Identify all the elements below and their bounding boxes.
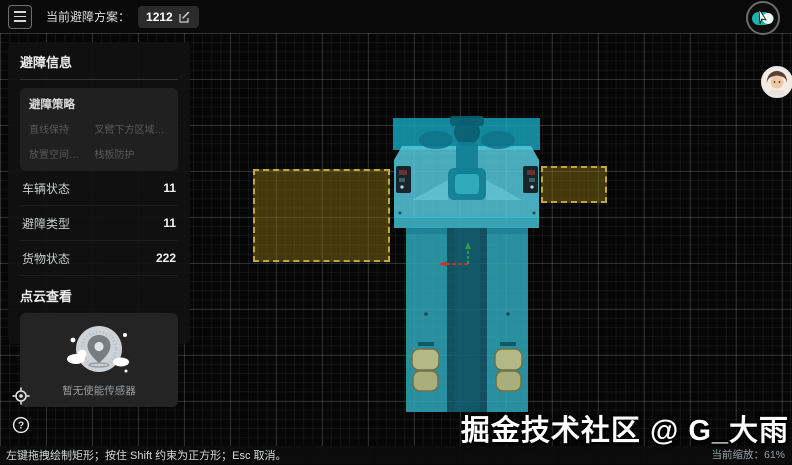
strategy-item: 叉臂下方区域保... (95, 121, 169, 136)
obstacle-info-panel: 避障信息 避障策略 直线保持 叉臂下方区域保... 放置空间检测 栈板防护 车辆… (8, 42, 190, 344)
plan-value: 1212 (146, 10, 173, 24)
stat-label: 避障类型 (22, 215, 70, 232)
draw-hint-text: 左键拖拽绘制矩形；按住 Shift 约束为正方形；Esc 取消。 (6, 447, 287, 463)
zoom-level-label: 当前缩放：61% (711, 447, 785, 462)
help-icon[interactable]: ? (10, 414, 32, 436)
menu-icon[interactable] (8, 5, 32, 29)
divider (20, 79, 178, 80)
stat-label: 货物状态 (22, 250, 70, 267)
strategy-card: 避障策略 直线保持 叉臂下方区域保... 放置空间检测 栈板防护 (20, 88, 178, 171)
strategy-item: 放置空间检测 (29, 146, 89, 161)
svg-text:?: ? (18, 421, 24, 432)
left-wheel (412, 349, 439, 391)
stat-value: 222 (156, 251, 176, 265)
pointer-tool-button[interactable] (746, 1, 780, 35)
pointcloud-empty-text: 暂无使能传感器 (62, 383, 136, 398)
avoidance-zone-rect-right[interactable] (541, 166, 607, 203)
edit-icon[interactable] (179, 11, 191, 23)
plan-badge[interactable]: 1212 (138, 6, 199, 28)
watermark-text: 掘金技术社区 @ G_大雨 (461, 407, 789, 449)
stat-value: 11 (163, 216, 176, 230)
panel-title: 避障信息 (20, 52, 178, 71)
top-bar: 当前避障方案： 1212 (0, 0, 792, 33)
pointcloud-title: 点云查看 (20, 286, 178, 305)
stat-row-cargo-status: 货物状态 222 (20, 241, 178, 276)
strategy-title: 避障策略 (29, 96, 169, 112)
stat-row-obstacle-type: 避障类型 11 (20, 206, 178, 241)
strategy-item: 直线保持 (29, 121, 89, 136)
stat-label: 车辆状态 (22, 180, 70, 197)
locate-icon[interactable] (10, 385, 32, 407)
stat-row-vehicle-status: 车辆状态 11 (20, 171, 178, 206)
strategy-item: 栈板防护 (95, 146, 169, 161)
current-plan-label: 当前避障方案： (46, 8, 130, 25)
cloud-pin-illustration (63, 322, 135, 380)
pose-axes-marker (438, 240, 474, 273)
user-avatar[interactable] (761, 66, 792, 98)
avoidance-zone-rect-left[interactable] (253, 169, 390, 262)
pointcloud-empty-card: 暂无使能传感器 (20, 313, 178, 407)
cursor-toggle-icon (750, 5, 776, 31)
right-wheel (495, 349, 522, 391)
stat-value: 11 (163, 181, 176, 195)
